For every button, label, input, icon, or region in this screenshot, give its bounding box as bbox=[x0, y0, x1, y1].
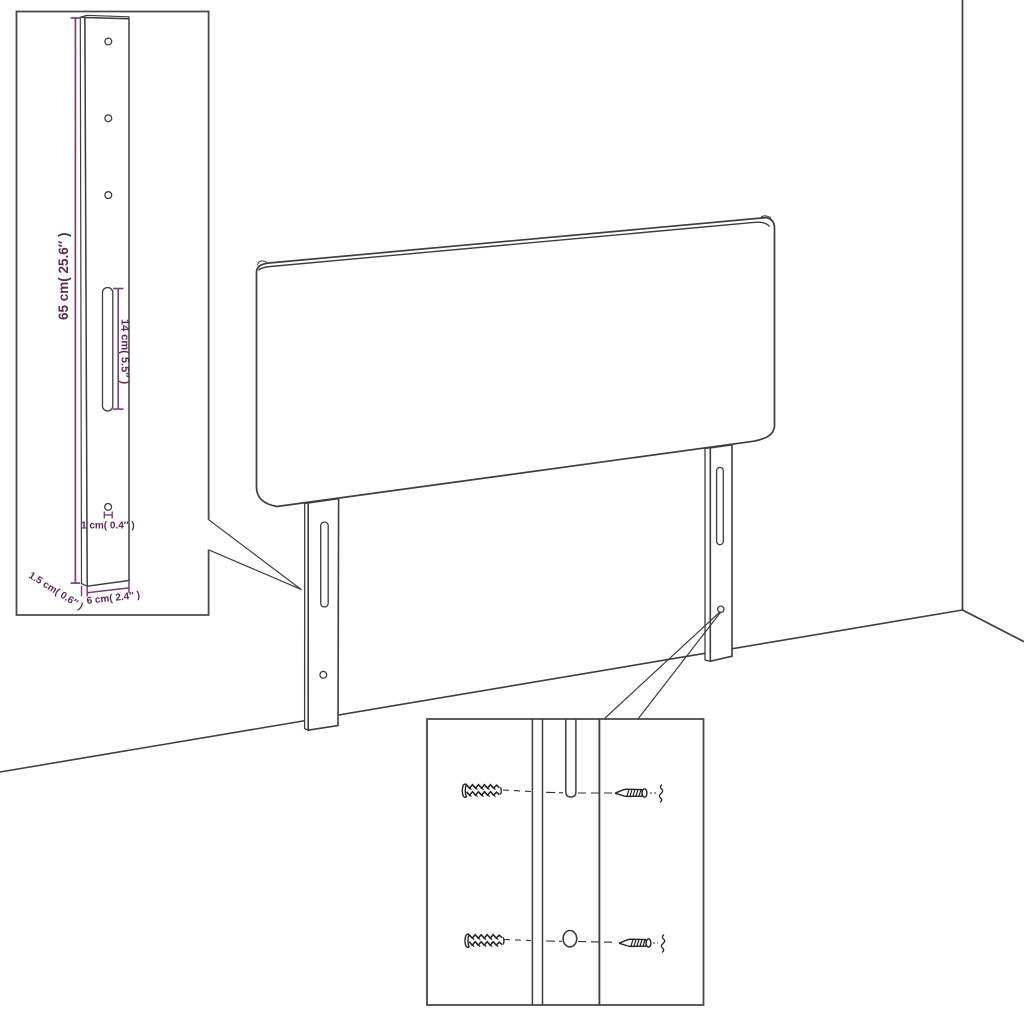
svg-text:14 cm( 5.5″ ): 14 cm( 5.5″ ) bbox=[119, 319, 131, 385]
svg-text:1 cm( 0.4″ ): 1 cm( 0.4″ ) bbox=[81, 521, 135, 532]
svg-text:65 cm( 25.6″ ): 65 cm( 25.6″ ) bbox=[56, 232, 71, 320]
